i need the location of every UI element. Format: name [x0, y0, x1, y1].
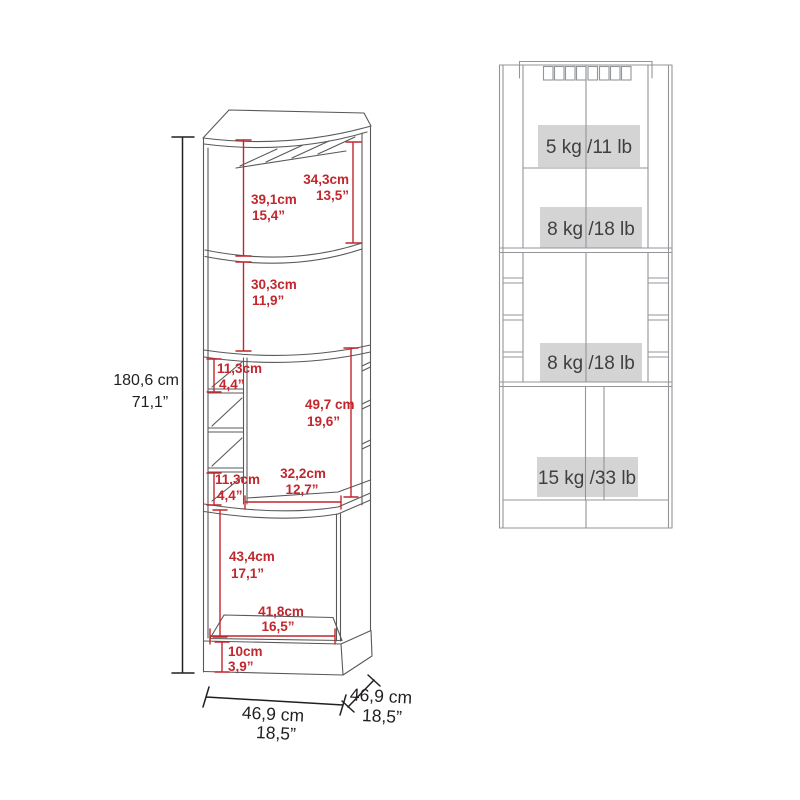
dim-second-section-in: 11,9” [252, 293, 284, 308]
overall-depth-cm: 46,9 cm [349, 684, 412, 707]
dim-line-second-section [236, 262, 251, 351]
dim-bottom-width-cm: 41,8cm [258, 604, 304, 619]
dim-middle-width-cm: 32,2cm [280, 466, 326, 481]
dim-cubby-upper-cm: 11,3cm [217, 361, 262, 376]
capacity-labels: 5 kg /11 lb 8 kg /18 lb 8 kg /18 lb 15 k… [538, 137, 636, 489]
dim-base-height-in: 3,9” [228, 659, 254, 674]
capacity-label-bottom-cabinet: 15 kg /33 lb [538, 468, 636, 489]
bottom-cabinet-right-edge [337, 514, 341, 641]
overall-depth-in: 18,5” [362, 705, 403, 727]
red-dimension-labels: 34,3cm 13,5” 39,1cm 15,4” 30,3cm 11,9” 1… [215, 172, 355, 674]
capacity-label-upper-shelf: 8 kg /18 lb [547, 219, 635, 240]
dim-top-section-in: 15,4” [252, 208, 285, 223]
overall-width-in: 18,5” [256, 722, 297, 744]
dim-line-top-section [236, 140, 251, 256]
dim-cubby-lower-in: 4,4” [217, 488, 243, 503]
dim-second-section-cm: 30,3cm [251, 277, 297, 292]
side-wine-slots-3d [362, 362, 371, 449]
overall-height-dim-line [172, 137, 194, 673]
dim-cubby-upper-in: 4,4” [219, 377, 245, 392]
dim-glass-rack-cm: 34,3cm [303, 172, 349, 187]
stemware-rack-slots [544, 67, 632, 81]
diagram-svg: 5 kg /11 lb 8 kg /18 lb 8 kg /18 lb 15 k… [0, 0, 800, 800]
elevation-module-band-1 [500, 248, 673, 253]
dim-top-section-cm: 39,1cm [251, 192, 297, 207]
dim-line-middle-section [344, 348, 358, 497]
elevation-module-band-2 [500, 382, 673, 387]
elevation-left-wine-slots [503, 278, 523, 357]
dim-line-middle-width [245, 496, 341, 509]
furniture-dimension-diagram: 5 kg /11 lb 8 kg /18 lb 8 kg /18 lb 15 k… [0, 0, 800, 800]
capacity-label-glass-rack-shelf: 5 kg /11 lb [546, 137, 632, 158]
dim-bottom-width-in: 16,5” [261, 619, 294, 634]
dim-middle-section-in: 19,6” [307, 414, 340, 429]
dim-bottom-cabinet-cm: 43,4cm [229, 549, 275, 564]
cabinet-right-edge [362, 127, 371, 630]
capacity-label-middle-shelf: 8 kg /18 lb [547, 353, 635, 374]
overall-height-cm: 180,6 cm [113, 372, 179, 389]
cabinet-top-front-curve [203, 126, 371, 148]
dim-cubby-lower-cm: 11,3cm [215, 472, 260, 487]
dim-middle-section-cm: 49,7 cm [305, 397, 355, 412]
dim-middle-width-in: 12,7” [285, 482, 318, 497]
dim-line-bottom-cabinet [213, 510, 227, 637]
cabinet-top-panel [203, 110, 371, 138]
elevation-right-wine-slots [648, 278, 669, 357]
dim-base-height-cm: 10cm [228, 644, 263, 659]
dim-bottom-cabinet-in: 17,1” [231, 566, 264, 581]
shelf-1-curved [205, 243, 362, 263]
capacity-boxes [537, 125, 642, 497]
cabinet-left-edge [204, 138, 209, 672]
dim-line-base-height [215, 642, 229, 672]
dim-glass-rack-in: 13,5” [316, 188, 349, 203]
overall-height-in: 71,1” [132, 394, 168, 411]
front-elevation-drawing [500, 62, 673, 529]
